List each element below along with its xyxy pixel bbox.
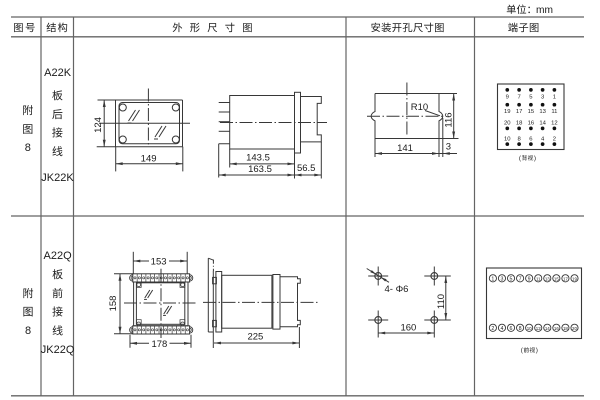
svg-text:5: 5 xyxy=(510,276,513,282)
svg-text:8: 8 xyxy=(25,142,31,154)
svg-text:3: 3 xyxy=(500,276,503,282)
svg-text:124: 124 xyxy=(93,117,104,133)
svg-text:17: 17 xyxy=(516,109,523,115)
svg-text:17: 17 xyxy=(563,276,568,281)
svg-text:18: 18 xyxy=(516,120,523,126)
svg-text:10: 10 xyxy=(504,137,511,143)
svg-text:9: 9 xyxy=(506,95,509,101)
svg-text:JK22Q: JK22Q xyxy=(41,344,75,356)
svg-text:8: 8 xyxy=(519,326,522,332)
svg-text:8: 8 xyxy=(25,325,31,337)
svg-text:20: 20 xyxy=(572,326,577,331)
svg-text:4- Φ6: 4- Φ6 xyxy=(385,284,409,295)
svg-text:149: 149 xyxy=(141,153,157,164)
svg-text:13: 13 xyxy=(545,276,550,281)
svg-text:13: 13 xyxy=(539,109,546,115)
svg-text:12: 12 xyxy=(536,326,541,331)
svg-text:JK22K: JK22K xyxy=(41,172,74,184)
svg-text:19: 19 xyxy=(504,109,511,115)
svg-text:141: 141 xyxy=(397,143,413,154)
svg-text:160: 160 xyxy=(400,323,416,334)
svg-text:R10: R10 xyxy=(411,102,428,113)
svg-text:6: 6 xyxy=(510,326,513,332)
svg-text:158: 158 xyxy=(108,296,119,312)
svg-text:mm: mm xyxy=(536,5,553,16)
svg-text:14: 14 xyxy=(539,120,546,126)
svg-text:A22Q: A22Q xyxy=(44,250,73,262)
svg-text:143.5: 143.5 xyxy=(246,153,270,164)
svg-text:): ) xyxy=(534,155,536,162)
svg-text:11: 11 xyxy=(536,276,541,281)
svg-text:178: 178 xyxy=(151,339,167,350)
svg-text:4: 4 xyxy=(500,326,503,332)
svg-text:153: 153 xyxy=(151,257,167,268)
svg-text:16: 16 xyxy=(554,326,559,331)
svg-text:110: 110 xyxy=(436,294,447,309)
svg-text:116: 116 xyxy=(444,112,455,127)
svg-text:18: 18 xyxy=(563,326,568,331)
svg-text:16: 16 xyxy=(528,120,535,126)
svg-text:): ) xyxy=(536,347,538,354)
svg-text:3: 3 xyxy=(446,142,451,153)
svg-text:19: 19 xyxy=(572,276,577,281)
svg-text:20: 20 xyxy=(504,120,511,126)
svg-text:15: 15 xyxy=(528,109,535,115)
svg-text:10: 10 xyxy=(527,326,532,331)
svg-text:2: 2 xyxy=(491,326,494,332)
svg-text:2: 2 xyxy=(553,137,556,143)
svg-text:9: 9 xyxy=(528,276,531,282)
svg-text:A22K: A22K xyxy=(44,67,72,79)
svg-text:14: 14 xyxy=(545,326,550,331)
svg-text:1: 1 xyxy=(491,276,494,282)
svg-text:56.5: 56.5 xyxy=(297,163,316,174)
svg-text:11: 11 xyxy=(551,109,557,115)
svg-text:7: 7 xyxy=(517,95,520,101)
svg-text:12: 12 xyxy=(551,120,558,126)
svg-text:225: 225 xyxy=(247,332,263,343)
svg-text:1: 1 xyxy=(553,95,556,101)
svg-text:15: 15 xyxy=(554,276,559,281)
svg-text:7: 7 xyxy=(519,276,522,282)
svg-text:163.5: 163.5 xyxy=(248,164,272,175)
